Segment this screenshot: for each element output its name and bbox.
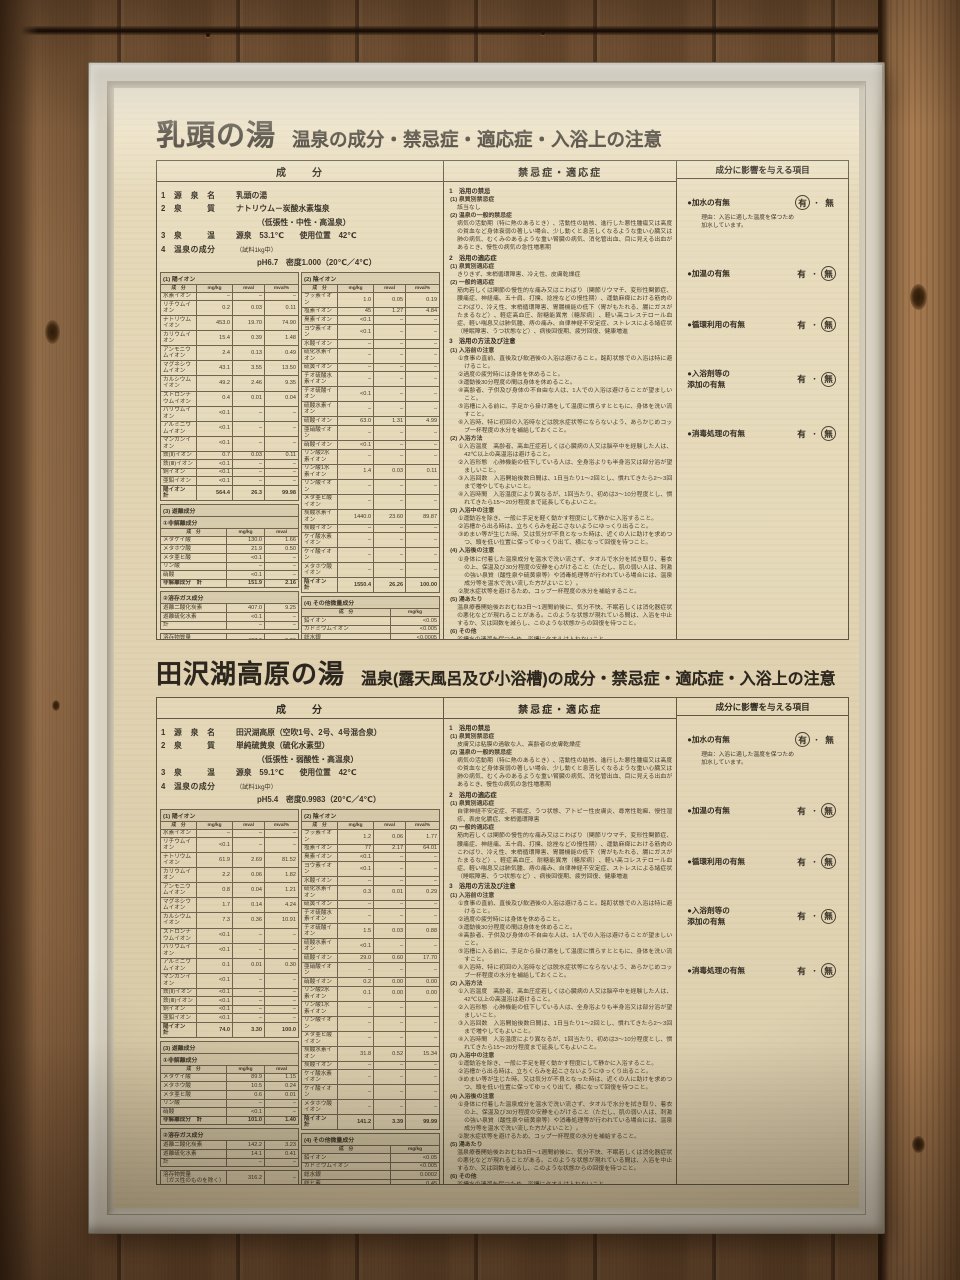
- info-value: 田沢湖高原（空吹1号、2号、4号混合泉）: [236, 727, 382, 738]
- option-separator: ・: [811, 857, 818, 867]
- table-cell: カドミウムイオン: [302, 1162, 391, 1171]
- table-cell: –: [374, 1016, 406, 1031]
- table-cell: –: [265, 997, 299, 1006]
- option-no: 無: [821, 266, 836, 281]
- anion-table-title: (2) 陰イオン: [301, 809, 440, 821]
- table-row: チオ硫酸水素イオン–––: [302, 372, 440, 387]
- table-cell: –: [233, 838, 265, 853]
- table-cell: –: [233, 928, 265, 943]
- column-header-cell: mval%: [265, 285, 299, 293]
- table-cell: 101.0: [227, 1116, 265, 1125]
- table-cell: 130.0: [227, 536, 265, 545]
- table-cell: 0.01: [374, 885, 406, 900]
- table-cell: –: [406, 1100, 440, 1115]
- table-cell: 0.8: [197, 883, 233, 898]
- column-header-cell: mval: [374, 285, 406, 293]
- table-cell: 0.03: [374, 924, 406, 939]
- column-header-cell: mval: [233, 285, 265, 293]
- table-row: ストロンチウムイオン0.40.010.04: [161, 391, 299, 406]
- table-cell: リン酸1水素イオン: [302, 464, 338, 479]
- table-cell: 硝酸: [161, 571, 227, 580]
- table-row: 亜鉛イオン<0.1––: [161, 477, 299, 486]
- table-cell: 74.0: [197, 1023, 233, 1038]
- table-cell: –: [374, 363, 406, 372]
- table-cell: –: [338, 1001, 374, 1016]
- table-row: リン酸––: [161, 1099, 299, 1108]
- option-separator: ・: [811, 374, 818, 384]
- table-cell: 陰イオン 計: [302, 578, 338, 593]
- table-cell: アンモニウムイオン: [161, 346, 197, 361]
- nondissociated-title: ①非解離成分: [160, 1053, 299, 1065]
- notes-subheading: (6) その他: [450, 628, 672, 636]
- section-table: 成 分 1源 泉 名田沢湖高原（空吹1号、2号、4号混合泉）2泉 質単純硫黄泉（…: [156, 697, 849, 1185]
- impact-row: ●循環利用の有無有・無: [687, 854, 840, 869]
- table-row: ナトリウムイオン61.92.6981.52: [161, 853, 299, 868]
- table-cell: –: [374, 1001, 406, 1016]
- table-cell: –: [406, 861, 440, 876]
- table-cell: 水酸イオン: [302, 339, 338, 348]
- table-cell: 1.4: [338, 464, 374, 479]
- table-cell: –: [338, 548, 374, 563]
- table-cell: 0.00: [374, 986, 406, 1001]
- table-cell: 26.26: [374, 578, 406, 593]
- section-table: 成 分 1源 泉 名乳頭の湯2泉 質ナトリウム－炭酸水素塩泉（低張性・中性・高温…: [156, 160, 849, 640]
- table-cell: –: [338, 1016, 374, 1031]
- bathing-notes: 1 浴用の禁忌(1) 泉質別禁忌症該当なし(2) 温泉の一般的禁忌症病気の活動期…: [444, 182, 676, 639]
- notes-heading: 3 浴用の方法及び注意: [449, 883, 672, 892]
- option-yes: 有: [795, 964, 808, 977]
- table-row: 硝酸イオン<0.1––: [302, 440, 440, 449]
- anion-table: 成 分mg/kgmvalmval%フッ素イオン1.20.061.77塩素イオン7…: [301, 821, 440, 1130]
- notes-item: ③めまい等が生じた時、又は気分が不良となった時は、近くの人に助けを求めつつ、頭を…: [458, 531, 672, 547]
- notes-subheading: (4) 入浴後の注意: [450, 1093, 672, 1101]
- table-header-row: 成 分mg/kg: [302, 1146, 440, 1154]
- table-cell: 0.11: [265, 301, 299, 316]
- column-header-cell: mg/kg: [197, 822, 233, 830]
- table-cell: 硝酸イオン: [302, 977, 338, 986]
- table-cell: リチウムイオン: [161, 301, 197, 316]
- table-cell: –: [374, 387, 406, 402]
- notes-paragraph: 筋肉若しくは関節の慢性的な痛み又はこわばり（関節リウマチ、変形性関節症、腰痛症、…: [457, 832, 672, 880]
- notes-paragraph: 筋肉若しくは関節の慢性的な痛み又はこわばり（関節リウマチ、変形性関節症、腰痛症、…: [457, 287, 672, 335]
- table-cell: –: [374, 348, 406, 363]
- impact-label: ●消毒処理の有無: [687, 428, 745, 439]
- table-cell: –: [406, 324, 440, 339]
- table-cell: –: [406, 348, 440, 363]
- table-cell: –: [338, 1031, 374, 1046]
- table-cell: 遊離二酸化炭素: [161, 1141, 227, 1150]
- option-separator: ・: [811, 911, 818, 921]
- table-cell: –: [338, 479, 374, 494]
- table-cell: –: [197, 829, 233, 838]
- table-cell: 0.00: [406, 977, 440, 986]
- option-no: 無: [821, 909, 836, 924]
- table-cell: 61.9: [197, 853, 233, 868]
- table-row: 計––: [161, 1158, 299, 1167]
- option-yes: 有: [795, 373, 808, 386]
- table-cell: リン酸2水素イオン: [302, 449, 338, 464]
- table-cell: ヨウ素イオン: [302, 324, 338, 339]
- info-label: 泉 温: [174, 230, 236, 241]
- notes-subheading: (1) 入浴前の注意: [450, 892, 672, 900]
- table-cell: <0.1: [197, 460, 233, 469]
- table-cell: チオ硫酸イオン: [302, 924, 338, 939]
- column-header-cell: mval%: [406, 822, 440, 830]
- table-cell: –: [374, 440, 406, 449]
- table-row: メタホウ酸イオン–––: [302, 563, 440, 578]
- impact-row: ●加温の有無有・無: [687, 266, 840, 281]
- section-header: 田沢湖高原の湯 温泉(露天風呂及び小浴槽)の成分・禁忌症・適応症・入浴上の注意: [156, 654, 849, 691]
- cation-stack: (1) 陽イオン 成 分mg/kgmvalmval%水素イオン–––リチウムイオ…: [159, 272, 300, 639]
- table-row: ケイ酸水素イオン–––: [302, 533, 440, 548]
- table-cell: –: [338, 1061, 374, 1070]
- table-cell: –: [374, 909, 406, 924]
- table-header-row: 成 分mg/kgmvalmval%: [302, 285, 440, 293]
- info-label: 泉 温: [174, 767, 236, 778]
- impact-label: ●入浴剤等の 添加の有無: [687, 905, 730, 927]
- free-components-title: (3) 遊離成分: [160, 504, 299, 516]
- column-header-cell: mg/kg: [391, 609, 440, 617]
- impact-choice: 有・無: [795, 854, 836, 869]
- notes-heading: 3 浴用の方法及び注意: [449, 338, 672, 347]
- table-cell: 89.9: [227, 1073, 265, 1082]
- table-cell: –: [233, 436, 265, 451]
- table-cell: 0.04: [265, 391, 299, 406]
- column-header-cell: 成 分: [302, 285, 338, 293]
- table-row: 遊離硫化水素14.10.41: [161, 1150, 299, 1159]
- option-separator: ・: [811, 269, 818, 279]
- wood-knot: [45, 320, 60, 344]
- table-cell: <0.05: [391, 617, 440, 626]
- table-cell: –: [374, 316, 406, 325]
- notes-item: ⑤浴槽に入る前に、手足から掛け湯をして温度に慣らすとともに、身体を洗い流すこと。: [458, 403, 672, 419]
- table-cell: 43.1: [197, 361, 233, 376]
- table-cell: 硫酸イオン: [302, 417, 338, 426]
- table-cell: バリウムイオン: [161, 943, 197, 958]
- table-cell: 0.03: [374, 464, 406, 479]
- table-cell: 1.31: [374, 417, 406, 426]
- table-cell: 0.39: [233, 331, 265, 346]
- impact-item: ●入浴剤等の 添加の有無有・無: [687, 905, 840, 927]
- table-cell: –: [338, 962, 374, 977]
- table-cell: 89.87: [406, 509, 440, 524]
- table-cell: 硫酸水素イオン: [302, 939, 338, 954]
- info-label: 泉 質: [174, 740, 236, 751]
- table-total-row: 陽イオン 計564.426.399.98: [161, 486, 299, 501]
- table-row: ヨウ素イオン<0.1––: [302, 324, 440, 339]
- table-cell: –: [227, 621, 265, 630]
- table-cell: –: [265, 1005, 299, 1014]
- info-no: 2: [161, 741, 174, 750]
- table-cell: 0.00: [406, 986, 440, 1001]
- table-cell: –: [374, 425, 406, 440]
- dissolved-gas-title: ②溶存ガス成分: [160, 1128, 299, 1140]
- table-cell: –: [265, 973, 299, 988]
- table-row: マグネシウムイオン1.70.144.24: [161, 898, 299, 913]
- table-cell: 0.60: [374, 954, 406, 963]
- column-header-cell: mval: [265, 529, 299, 537]
- option-yes: 有: [795, 855, 808, 868]
- table-cell: ヨウ素イオン: [302, 861, 338, 876]
- impact-reason: 理由：入浴に適した温度を保つため 加水しています。: [701, 751, 840, 767]
- table-cell: –: [233, 1005, 265, 1014]
- table-cell: 0.4: [197, 391, 233, 406]
- column-header-cell: mg/kg: [391, 1146, 440, 1154]
- notes-paragraph: 病気の活動期（特に熱のあるとき）、活動性の結核、進行した悪性腫瘍又は高度の貧血な…: [457, 220, 672, 252]
- info-value: ナトリウム－炭酸水素塩泉: [236, 203, 330, 214]
- option-separator: ・: [813, 198, 820, 208]
- table-cell: 亜鉛イオン: [161, 477, 197, 486]
- table-cell: 63.0: [338, 417, 374, 426]
- table-cell: 1.21: [265, 883, 299, 898]
- table-cell: 総水銀: [302, 1171, 391, 1180]
- column-header-cell: mg/kg: [197, 285, 233, 293]
- column-header-contraindications: 禁忌症・適応症: [444, 698, 676, 719]
- table-cell: 水酸イオン: [302, 876, 338, 885]
- option-no: 無: [821, 854, 836, 869]
- table-total-row: 非解離成分 計151.92.16: [161, 579, 299, 588]
- table-row: 硫化水素イオン0.30.010.29: [302, 885, 440, 900]
- table-cell: 0.45: [391, 1180, 440, 1185]
- ion-tables: (1) 陽イオン 成 分mg/kgmvalmval%水素イオン–––リチウムイオ…: [157, 809, 443, 1184]
- table-cell: 4.99: [406, 417, 440, 426]
- impact-choice: 有・無: [795, 372, 836, 387]
- table-cell: 142.2: [227, 1141, 265, 1150]
- table-cell: –: [233, 973, 265, 988]
- table-row: 銅イオン<0.1––: [161, 468, 299, 477]
- impact-label: ●加水の有無: [687, 734, 730, 745]
- table-cell: 23.60: [374, 509, 406, 524]
- table-row: 鉄(Ⅲ)イオン<0.1––: [161, 460, 299, 469]
- impact-label: ●加温の有無: [687, 268, 730, 279]
- table-cell: <0.005: [391, 625, 440, 634]
- table-row: 総水銀<0.0005: [302, 634, 440, 639]
- table-cell: –: [374, 563, 406, 578]
- table-cell: 0.50: [265, 545, 299, 554]
- table-cell: 2.4: [197, 346, 233, 361]
- table-row: リチウムイオン<0.1––: [161, 838, 299, 853]
- info-value: 源泉 53.1℃ 使用位置 42℃: [236, 230, 357, 241]
- notes-item: ②過度の疲労時には身体を休めること。: [458, 371, 672, 379]
- table-row: リン酸イオン–––: [302, 479, 440, 494]
- info-value-line2: （低張性・弱酸性・高温泉）: [257, 754, 439, 765]
- nail-dot: [541, 31, 545, 35]
- table-cell: マンガンイオン: [161, 436, 197, 451]
- table-cell: 遊離硫化水素: [161, 1150, 227, 1159]
- column-header-impact: 成分に影響を与える項目: [677, 698, 848, 716]
- table-cell: –: [233, 292, 265, 301]
- table-cell: リチウムイオン: [161, 838, 197, 853]
- table-total-row: 非解離成分 計101.01.40: [161, 1116, 299, 1125]
- dissolved-gas-table: 遊離二酸化炭素142.23.23遊離硫化水素14.10.41計––: [160, 1140, 299, 1167]
- table-header-row: 成 分mg/kgmval: [161, 1066, 299, 1074]
- table-cell: 21.9: [227, 545, 265, 554]
- table-cell: 15.34: [406, 1046, 440, 1061]
- table-cell: –: [338, 339, 374, 348]
- table-cell: 遊離二酸化炭素: [161, 604, 227, 613]
- table-cell: –: [374, 339, 406, 348]
- table-cell: 26.3: [233, 486, 265, 501]
- notes-subheading: (2) 温泉の一般的禁忌症: [450, 212, 672, 220]
- table-row: マンガンイオン<0.1––: [161, 973, 299, 988]
- table-cell: 水素イオン: [161, 829, 197, 838]
- table-row: メタケイ酸89.91.15: [161, 1073, 299, 1082]
- table-cell: 0.30: [265, 958, 299, 973]
- table-row: リン酸イオン–––: [302, 1016, 440, 1031]
- table-cell: 鉄(Ⅱ)イオン: [161, 451, 197, 460]
- table-cell: –: [406, 1070, 440, 1085]
- table-cell: –: [406, 533, 440, 548]
- table-cell: 鉄(Ⅲ)イオン: [161, 997, 197, 1006]
- table-cell: 硫黄イオン: [302, 363, 338, 372]
- table-cell: <0.1: [338, 939, 374, 954]
- notes-item: ②浴槽から出る時は、立ちくらみを起こさないようにゆっくり出ること。: [458, 1068, 672, 1076]
- table-cell: –: [406, 494, 440, 509]
- document-paper: 乳頭の湯 温泉の成分・禁忌症・適応症・入浴上の注意 成 分 1源 泉 名乳頭の湯…: [114, 88, 859, 1208]
- table-cell: –: [374, 876, 406, 885]
- table-row: 鉛イオン<0.05: [302, 617, 440, 626]
- table-cell: メタケイ酸: [161, 536, 227, 545]
- table-cell: <0.1: [338, 861, 374, 876]
- notes-item: ①入浴温度 高齢者、高血圧症若しくは心臓病の人又は脳卒中を経験した人は、42℃以…: [458, 988, 672, 1004]
- notes-item: ①入浴温度 高齢者、高血圧症若しくは心臓病の人又は脳卒中を経験した人は、42℃以…: [458, 443, 672, 459]
- table-cell: <0.1: [338, 316, 374, 325]
- impact-row: ●加水の有無有・無: [687, 195, 840, 210]
- table-cell: –: [233, 943, 265, 958]
- table-cell: 溶存物質量 （ガス性のものを除く）: [161, 1171, 227, 1184]
- table-cell: 0.14: [233, 898, 265, 913]
- table-row: 硝酸イオン0.20.000.00: [302, 977, 440, 986]
- notes-item: ⑤浴槽に入る前に、手足から掛け湯をして温度に慣らすとともに、身体を洗い流すこと。: [458, 948, 672, 964]
- table-cell: 0.0002: [391, 1171, 440, 1180]
- impact-column: 成分に影響を与える項目 ●加水の有無有・無理由：入浴に適した温度を保つため 加水…: [677, 698, 848, 1184]
- table-cell: 15.4: [197, 331, 233, 346]
- table-cell: 溶存物質量 （ガス性のものを除く）: [161, 634, 227, 639]
- table-cell: –: [406, 425, 440, 440]
- table-cell: 炭酸水素イオン: [302, 509, 338, 524]
- notes-paragraph: 該当なし: [457, 204, 672, 212]
- table-row: 硫黄イオン–––: [302, 363, 440, 372]
- photo-of-framed-notice: 乳頭の湯 温泉の成分・禁忌症・適応症・入浴上の注意 成 分 1源 泉 名乳頭の湯…: [0, 0, 960, 1280]
- table-row: メタ亜ヒ酸イオン–––: [302, 1031, 440, 1046]
- impact-column: 成分に影響を与える項目 ●加水の有無有・無理由：入浴に適した温度を保つため 加水…: [677, 161, 848, 639]
- table-cell: 151.9: [227, 579, 265, 588]
- table-row: 鉛イオン<0.05: [302, 1154, 440, 1163]
- table-row: メタ亜ヒ酸イオン–––: [302, 494, 440, 509]
- impact-reason: 理由：入浴に適した温度を保つため 加水しています。: [701, 214, 840, 230]
- column-header-cell: mval: [265, 1066, 299, 1074]
- table-cell: –: [227, 1158, 265, 1167]
- notes-item: ②入浴形態 心肺機能の低下している人は、全身浴よりも半身浴又は部分浴が望ましいこ…: [458, 459, 672, 475]
- notes-item: ①運動浴を除き、一般に手足を軽く動かす程度にして静かに入浴すること。: [458, 1060, 672, 1068]
- table-cell: 4.24: [265, 898, 299, 913]
- table-cell: 炭酸水素イオン: [302, 1046, 338, 1061]
- table-cell: –: [406, 372, 440, 387]
- table-cell: –: [265, 829, 299, 838]
- info-value-line2: pH5.4 密度0.9983（20℃／4℃）: [257, 794, 439, 805]
- table-cell: –: [406, 339, 440, 348]
- notes-subheading: (1) 入浴前の注意: [450, 347, 672, 355]
- info-no: 4: [161, 245, 174, 254]
- table-cell: 炭酸イオン: [302, 1061, 338, 1070]
- table-total-row: 陰イオン 計1550.426.26100.00: [302, 578, 440, 593]
- notes-item: ②脱水症状等を避けるため、コップ一杯程度の水分を補給すること。: [458, 1133, 672, 1141]
- table-cell: 塩素イオン: [302, 307, 338, 316]
- table-cell: –: [265, 1099, 299, 1108]
- table-cell: 鉄(Ⅲ)イオン: [161, 460, 197, 469]
- table-cell: –: [406, 853, 440, 862]
- composition-column: 成 分 1源 泉 名田沢湖高原（空吹1号、2号、4号混合泉）2泉 質単純硫黄泉（…: [157, 698, 444, 1184]
- cation-table-title: (1) 陽イオン: [160, 809, 299, 821]
- table-cell: アンモニウムイオン: [161, 883, 197, 898]
- table-cell: 0.49: [265, 346, 299, 361]
- wood-board-right: [878, 0, 960, 1280]
- dissolved-total-table: 溶存物質量 （ガス性のものを除く）316.2–: [160, 1170, 299, 1184]
- notes-heading: 1 浴用の禁忌: [449, 188, 672, 197]
- table-cell: 9.35: [265, 376, 299, 391]
- table-cell: –: [338, 533, 374, 548]
- table-cell: 45: [338, 307, 374, 316]
- table-cell: メタホウ酸イオン: [302, 1100, 338, 1115]
- table-cell: 1.27: [374, 307, 406, 316]
- table-cell: 鉛イオン: [302, 1154, 391, 1163]
- table-cell: <0.1: [197, 1005, 233, 1014]
- table-cell: 2.46: [233, 376, 265, 391]
- table-cell: 0.52: [374, 1046, 406, 1061]
- table-row: アルミニウムイオン<0.1––: [161, 421, 299, 436]
- table-cell: 0.41: [265, 1150, 299, 1159]
- table-cell: 49.2: [197, 376, 233, 391]
- table-cell: –: [265, 613, 299, 622]
- table-cell: 陽イオン 計: [161, 1023, 197, 1038]
- info-label: 源 泉 名: [174, 727, 236, 738]
- info-row: 1源 泉 名乳頭の湯: [161, 190, 439, 201]
- table-cell: –: [338, 348, 374, 363]
- notes-subheading: (1) 泉質別適応症: [450, 263, 672, 271]
- table-cell: –: [265, 406, 299, 421]
- table-row: 水酸イオン–––: [302, 339, 440, 348]
- table-cell: –: [233, 988, 265, 997]
- table-cell: リン酸イオン: [302, 479, 338, 494]
- table-row: チオ硫酸イオン<0.1––: [302, 387, 440, 402]
- table-cell: カリウムイオン: [161, 868, 197, 883]
- table-cell: –: [406, 1001, 440, 1016]
- option-yes: 有: [795, 195, 810, 210]
- notes-item: ①食事の直前、直後及び飲酒後の入浴は避けること。酩酊状態での入浴は特に避けること…: [458, 355, 672, 371]
- table-cell: –: [338, 1085, 374, 1100]
- trace-components-title: (4) その他微量成分: [301, 596, 440, 608]
- option-separator: ・: [811, 320, 818, 330]
- table-cell: メタ亜ヒ酸イオン: [302, 1031, 338, 1046]
- column-header-cell: mval%: [406, 285, 440, 293]
- table-row: メタ亜ヒ酸0.60.01: [161, 1091, 299, 1100]
- notes-item: ③入浴回数 入浴開始後数日間は、1日当たり1～2回とし、慣れてきたら2～3回まで…: [458, 475, 672, 491]
- table-cell: –: [265, 943, 299, 958]
- impact-item: ●消毒処理の有無有・無: [687, 963, 840, 978]
- free-components-title: (3) 遊離成分: [160, 1041, 299, 1053]
- table-cell: 計: [161, 621, 227, 630]
- table-cell: 0.11: [406, 464, 440, 479]
- table-row: カドミウムイオン<0.005: [302, 625, 440, 634]
- notes-paragraph: 病気の活動期（特に熱のあるとき）、活動性の結核、進行した悪性腫瘍又は高度の貧血な…: [457, 757, 672, 789]
- notes-item: ⑥入浴時、特に初回の入浴時などは脱水症状等にならないよう、あらかじめコップ一杯程…: [458, 964, 672, 980]
- table-cell: –: [265, 928, 299, 943]
- table-cell: 1.48: [265, 331, 299, 346]
- table-cell: ケイ酸イオン: [302, 1085, 338, 1100]
- trace-table: 成 分mg/kg鉛イオン<0.05カドミウムイオン<0.005総水銀0.0002…: [301, 1145, 440, 1184]
- table-header-row: 成 分mg/kgmval: [161, 529, 299, 537]
- table-cell: –: [265, 460, 299, 469]
